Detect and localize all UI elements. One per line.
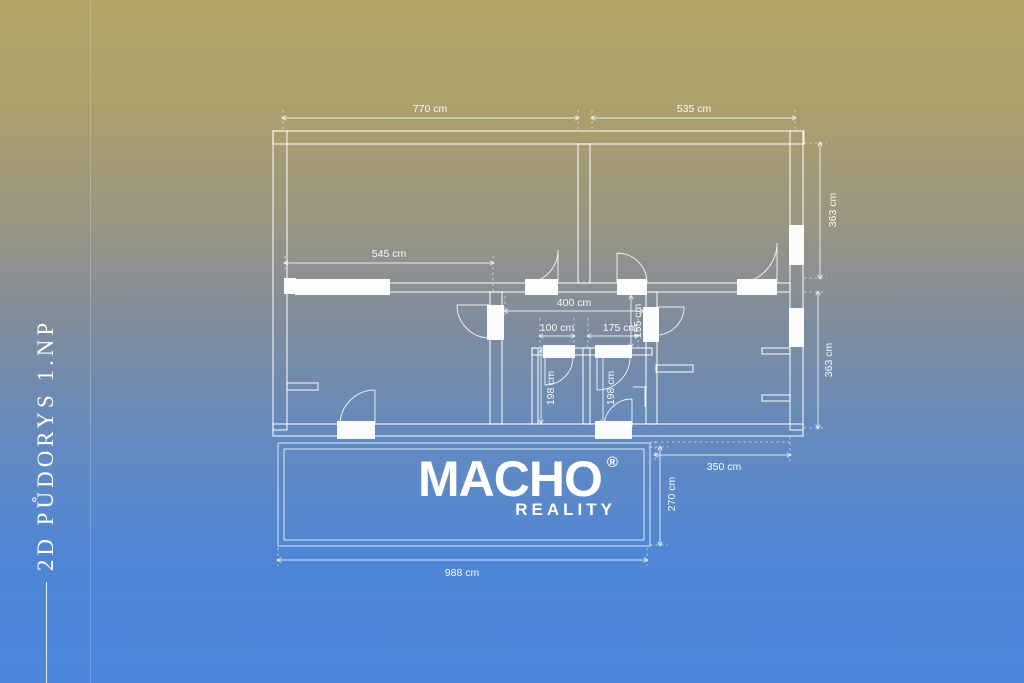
dim-hall-left-width: 100 cm [540,322,575,334]
dim-bath-right-depth: 198 cm [605,371,617,406]
dim-hall-width: 400 cm [557,297,592,309]
dim-top-left-width: 770 cm [413,103,448,115]
dim-right-upper-height: 363 cm [827,193,839,228]
sidebar-divider-line [90,0,91,683]
brand-logo: MACHO ® REALITY [418,454,618,518]
dim-bath-left-depth: 198 cm [545,371,557,406]
registered-trademark-icon: ® [607,455,618,470]
dim-hall-depth: 155 cm [632,304,644,339]
dim-top-right-width: 535 cm [677,103,712,115]
page-title: 2D PŮDORYS 1.NP [33,319,59,571]
brand-name: MACHO [418,454,602,504]
sidebar-accent-line [46,582,47,683]
page-background: 2D PŮDORYS 1.NP [0,0,1024,683]
dim-living-room-width: 545 cm [372,248,407,260]
dim-patio-width: 350 cm [707,461,742,473]
brand-tagline: REALITY [515,501,618,518]
dim-patio-depth: 270 cm [666,477,678,512]
door-swings [340,243,777,427]
dim-total-width: 988 cm [445,567,480,579]
dim-right-lower-height: 363 cm [823,343,835,378]
